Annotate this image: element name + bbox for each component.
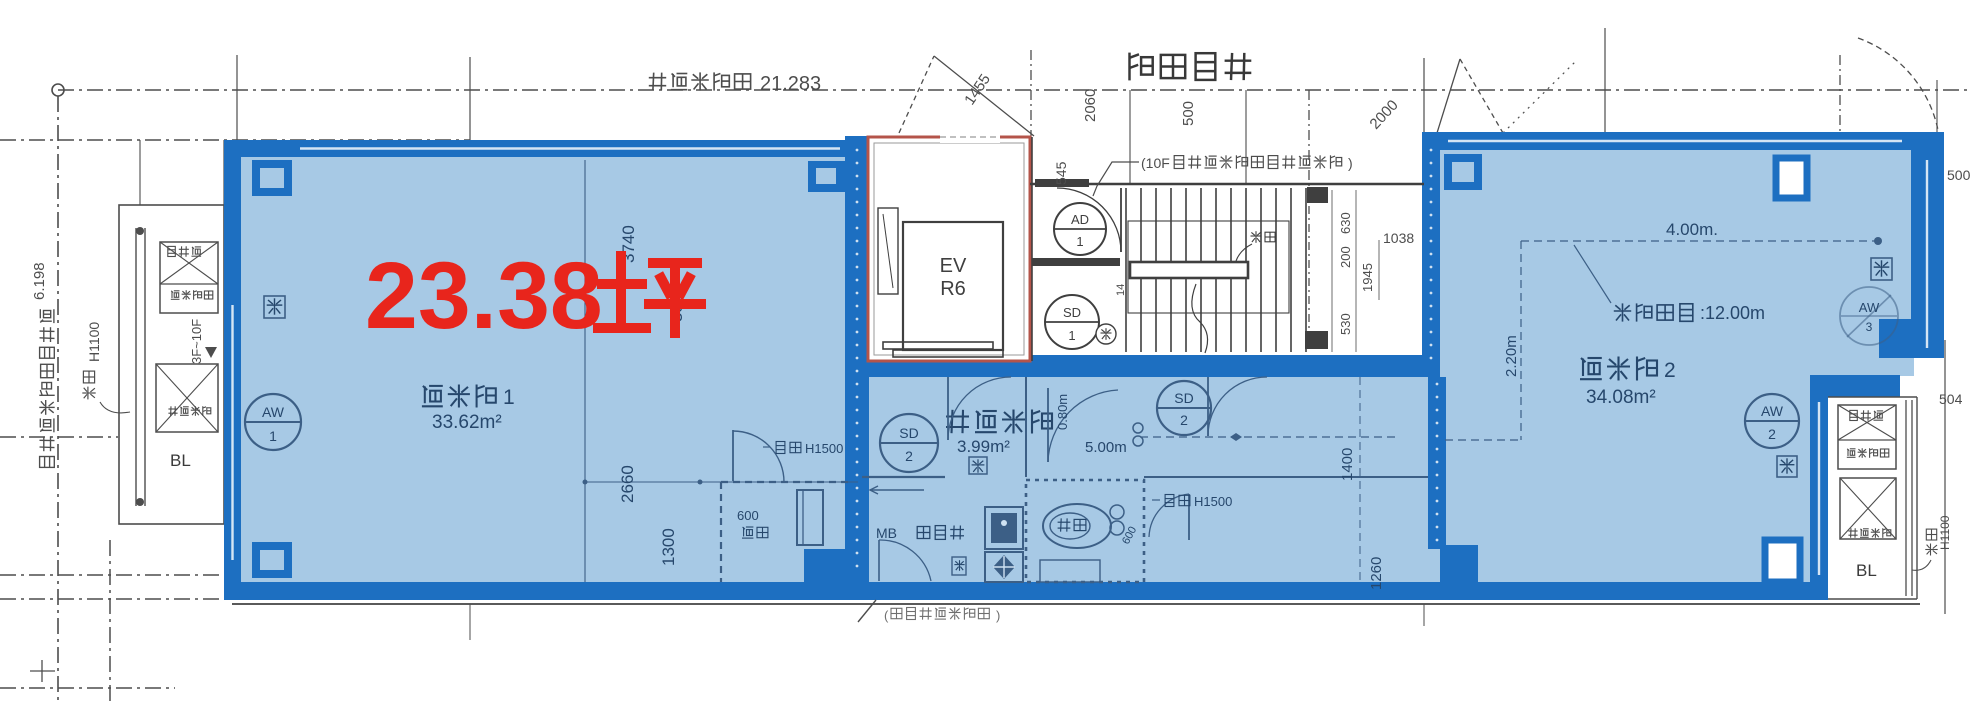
svg-text:1: 1 [269, 428, 277, 444]
svg-text:2060: 2060 [1082, 89, 1099, 122]
svg-text:AD: AD [1071, 212, 1089, 227]
svg-text:600: 600 [737, 508, 759, 523]
svg-text:1260: 1260 [1368, 557, 1385, 590]
svg-text:1945: 1945 [1360, 263, 1375, 292]
svg-text:2: 2 [1768, 426, 1776, 442]
svg-text:2660: 2660 [618, 465, 637, 503]
svg-text:(10F: (10F [1141, 155, 1170, 171]
svg-text:530: 530 [1338, 313, 1353, 335]
svg-text:H1100: H1100 [86, 322, 102, 362]
svg-text:1: 1 [503, 386, 515, 409]
svg-text:BL: BL [1856, 561, 1877, 580]
svg-text:1400: 1400 [1339, 448, 1356, 481]
svg-text:630: 630 [1338, 212, 1353, 234]
svg-text:EV: EV [940, 255, 967, 277]
svg-text:545: 545 [1053, 161, 1069, 185]
svg-text:R6: R6 [940, 278, 966, 300]
svg-text:6.198: 6.198 [31, 262, 48, 300]
svg-text:14: 14 [1115, 284, 1127, 296]
svg-text:AW: AW [1761, 403, 1784, 419]
svg-text:2: 2 [1180, 412, 1188, 428]
svg-text:3.99m²: 3.99m² [957, 437, 1010, 456]
svg-text:1: 1 [1076, 234, 1083, 249]
svg-text:1038: 1038 [1383, 230, 1414, 246]
svg-text:AW: AW [262, 404, 285, 420]
svg-text:MB: MB [876, 525, 897, 541]
svg-text::12.00m: :12.00m [1700, 303, 1765, 323]
svg-text:3: 3 [1866, 320, 1873, 334]
svg-text:H1500: H1500 [805, 441, 843, 456]
svg-text:1: 1 [1068, 328, 1075, 343]
svg-text:BL: BL [170, 451, 191, 470]
svg-text:500: 500 [1180, 101, 1197, 126]
svg-text:23.38: 23.38 [365, 243, 603, 349]
svg-text:4.00m.: 4.00m. [1666, 220, 1718, 239]
svg-text:H1500: H1500 [1194, 494, 1232, 509]
svg-text:2: 2 [1664, 359, 1676, 382]
svg-text:0.80m: 0.80m [1055, 394, 1070, 430]
svg-text:21.283: 21.283 [760, 73, 821, 95]
svg-text:5.00m: 5.00m [1085, 439, 1127, 456]
svg-text:): ) [996, 608, 1000, 623]
svg-text:SD: SD [899, 425, 918, 441]
svg-text:200: 200 [1338, 246, 1353, 268]
svg-text:H1100: H1100 [1938, 515, 1952, 550]
svg-text:500: 500 [1947, 167, 1971, 183]
svg-text:504: 504 [1939, 391, 1963, 407]
svg-text:): ) [1348, 155, 1353, 171]
svg-text:AW: AW [1859, 300, 1880, 315]
svg-text:2: 2 [905, 448, 913, 464]
svg-text:(: ( [884, 608, 889, 623]
svg-text:3F~10F: 3F~10F [189, 319, 204, 364]
svg-text:SD: SD [1063, 305, 1081, 320]
svg-text:1300: 1300 [659, 528, 678, 566]
svg-text:2.20m: 2.20m [1503, 335, 1520, 377]
svg-text:34.08m²: 34.08m² [1586, 387, 1656, 408]
svg-text:SD: SD [1174, 390, 1193, 406]
svg-text:33.62m²: 33.62m² [432, 412, 502, 433]
